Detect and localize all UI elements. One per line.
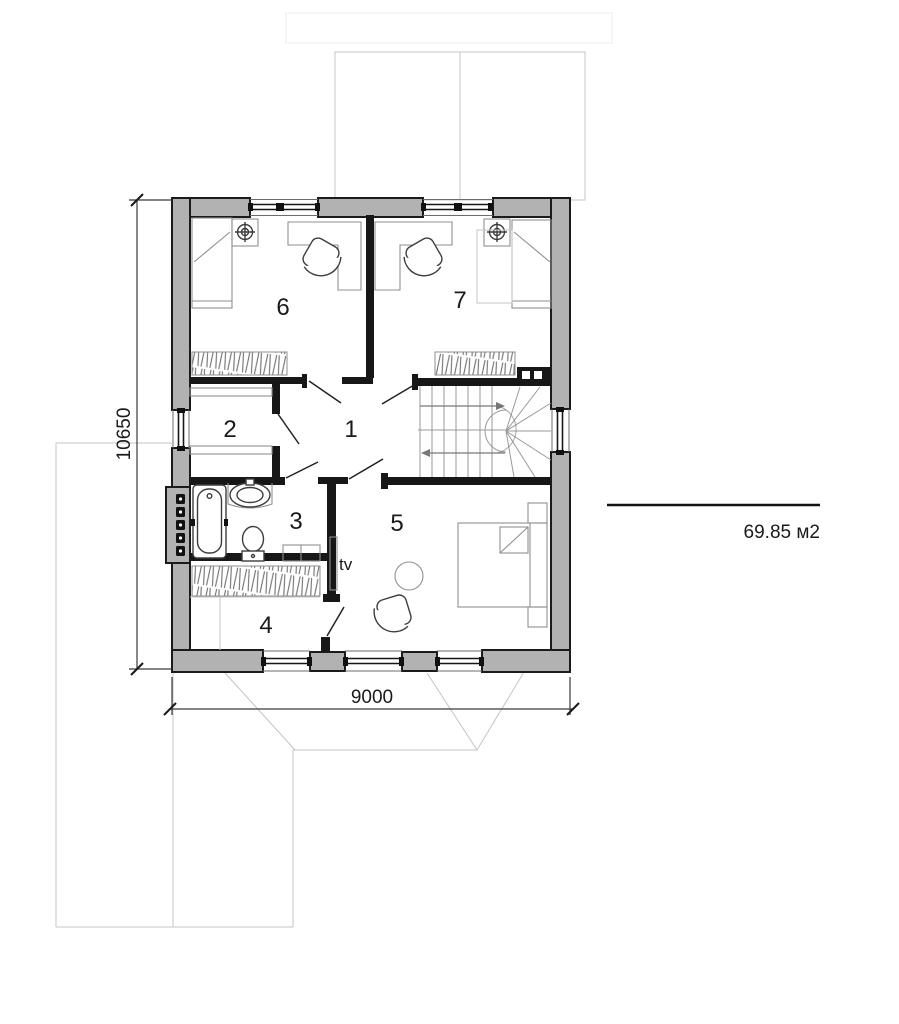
room-number-2: 2: [223, 416, 236, 443]
lamp-icon: [487, 222, 507, 242]
wall-bottom-left: [172, 650, 263, 672]
wall-room6-room7: [366, 215, 374, 378]
room-number-3: 3: [289, 508, 302, 535]
wall-top-pier: [318, 198, 423, 217]
wall-bath-top: [190, 477, 285, 485]
window-left: [173, 408, 189, 451]
wall-bottom-pier-2: [402, 652, 437, 671]
door-bathroom: [286, 462, 318, 478]
door-room7: [382, 385, 414, 404]
bathtub-icon: [191, 485, 228, 558]
wall-right-upper: [551, 198, 570, 409]
window-top-right: [421, 200, 493, 216]
chimney-flues-icon: [176, 494, 185, 556]
window-top-left: [248, 200, 320, 216]
dimension-horizontal: 9000: [164, 677, 579, 715]
wardrobe-hatch-room4: [192, 566, 320, 596]
door-room2: [278, 414, 299, 444]
wall-stairs-bottom: [385, 477, 551, 485]
wall-room2-upper: [272, 384, 280, 414]
rug-room7: [477, 230, 512, 303]
side-table-room5: [395, 562, 423, 590]
ground-floor-outline: [56, 13, 612, 927]
bed-room6: [192, 218, 232, 308]
toilet-icon: [242, 527, 264, 562]
wall-left-upper: [172, 198, 190, 410]
tv-label: tv: [339, 555, 353, 574]
stairs: [418, 386, 551, 477]
window-right: [552, 407, 569, 455]
room-number-7: 7: [453, 287, 466, 314]
door-room6: [309, 381, 341, 403]
window-bottom-3: [435, 651, 484, 671]
bed-room7: [512, 220, 551, 308]
room-number-1: 1: [344, 416, 357, 443]
wall-bottom-right: [482, 650, 570, 672]
room-number-6: 6: [276, 294, 289, 321]
dimension-vertical: 10650: [114, 194, 172, 675]
wall-room2-lower: [272, 446, 280, 477]
window-bottom-2: [343, 651, 404, 671]
floor-plan-canvas: 10650 9000 69.85 м2 1 2 3 4 5 6 7 tv: [0, 0, 899, 1024]
nightstand-room5-top: [528, 503, 547, 523]
wall-right-lower: [551, 452, 570, 652]
nightstand-room5-bottom: [528, 607, 547, 627]
area-label: 69.85 м2: [744, 522, 820, 543]
room-number-4: 4: [259, 612, 272, 639]
room4-furniture: [190, 597, 320, 650]
room-number-5: 5: [390, 510, 403, 537]
dimension-width-label: 9000: [351, 687, 393, 708]
office-chair-room7: [398, 230, 450, 282]
dimension-height-label: 10650: [114, 408, 135, 461]
wardrobe-hatch-room7: [435, 352, 515, 375]
floor-plan-page: 10650 9000 69.85 м2 1 2 3 4 5 6 7 tv: [0, 0, 899, 1024]
wall-room4-stub: [321, 637, 330, 651]
door-room5: [349, 459, 383, 479]
armchair-room5: [365, 583, 422, 640]
window-bottom-1: [261, 651, 312, 671]
door-room4-room5: [327, 607, 344, 636]
wall-bottom-pier-1: [310, 652, 345, 671]
wardrobe-hatch-room6: [192, 352, 287, 375]
room5-furniture: [330, 503, 547, 641]
lamp-icon: [235, 222, 255, 242]
area-callout: 69.85 м2: [607, 505, 820, 543]
office-chair-room6: [295, 230, 347, 282]
wall-room6-hall: [190, 377, 307, 384]
bed-room5: [458, 523, 547, 607]
